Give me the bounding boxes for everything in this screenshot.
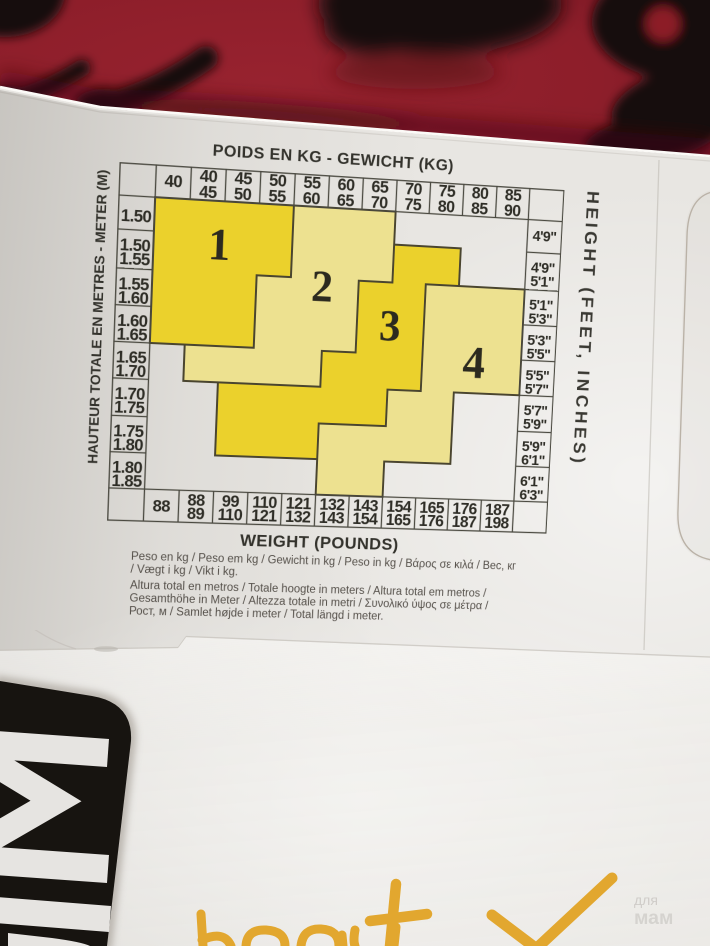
svg-text:165: 165 <box>385 510 412 530</box>
svg-text:198: 198 <box>484 513 510 532</box>
svg-text:6'3": 6'3" <box>519 487 543 504</box>
svg-text:1.70: 1.70 <box>115 360 146 381</box>
svg-text:121: 121 <box>251 506 278 526</box>
svg-text:65: 65 <box>337 190 356 210</box>
svg-text:80: 80 <box>437 196 455 216</box>
svg-text:4: 4 <box>461 335 486 388</box>
svg-text:154: 154 <box>352 509 379 529</box>
svg-text:1.75: 1.75 <box>114 397 146 418</box>
svg-text:75: 75 <box>404 194 423 214</box>
svg-text:2: 2 <box>310 261 334 311</box>
svg-text:50: 50 <box>234 184 252 205</box>
svg-text:176: 176 <box>418 511 444 530</box>
svg-text:1.50: 1.50 <box>121 205 152 226</box>
svg-text:88: 88 <box>152 496 171 516</box>
svg-text:4'9": 4'9" <box>532 228 557 245</box>
svg-text:5'3": 5'3" <box>528 311 553 328</box>
svg-text:90: 90 <box>504 200 521 220</box>
svg-text:132: 132 <box>285 507 311 527</box>
svg-text:3: 3 <box>378 300 402 350</box>
svg-text:5'9": 5'9" <box>523 416 547 433</box>
svg-text:1.60: 1.60 <box>118 287 149 308</box>
svg-text:1.80: 1.80 <box>113 434 144 454</box>
svg-text:110: 110 <box>217 505 242 525</box>
svg-text:40: 40 <box>164 171 182 192</box>
svg-text:85: 85 <box>471 198 489 218</box>
svg-text:1.85: 1.85 <box>111 470 143 490</box>
svg-text:5'7": 5'7" <box>524 381 548 398</box>
svg-text:45: 45 <box>199 182 218 203</box>
svg-text:70: 70 <box>370 192 388 212</box>
svg-text:5'5": 5'5" <box>526 346 551 363</box>
svg-text:55: 55 <box>268 186 287 207</box>
svg-text:1.55: 1.55 <box>119 248 151 269</box>
svg-text:143: 143 <box>319 508 345 528</box>
svg-text:1: 1 <box>207 218 231 269</box>
svg-text:1.65: 1.65 <box>116 324 148 345</box>
svg-text:89: 89 <box>187 504 205 524</box>
svg-text:60: 60 <box>302 188 320 208</box>
svg-text:187: 187 <box>451 512 476 531</box>
svg-text:6'1": 6'1" <box>521 452 545 469</box>
svg-text:5'1": 5'1" <box>530 274 555 291</box>
